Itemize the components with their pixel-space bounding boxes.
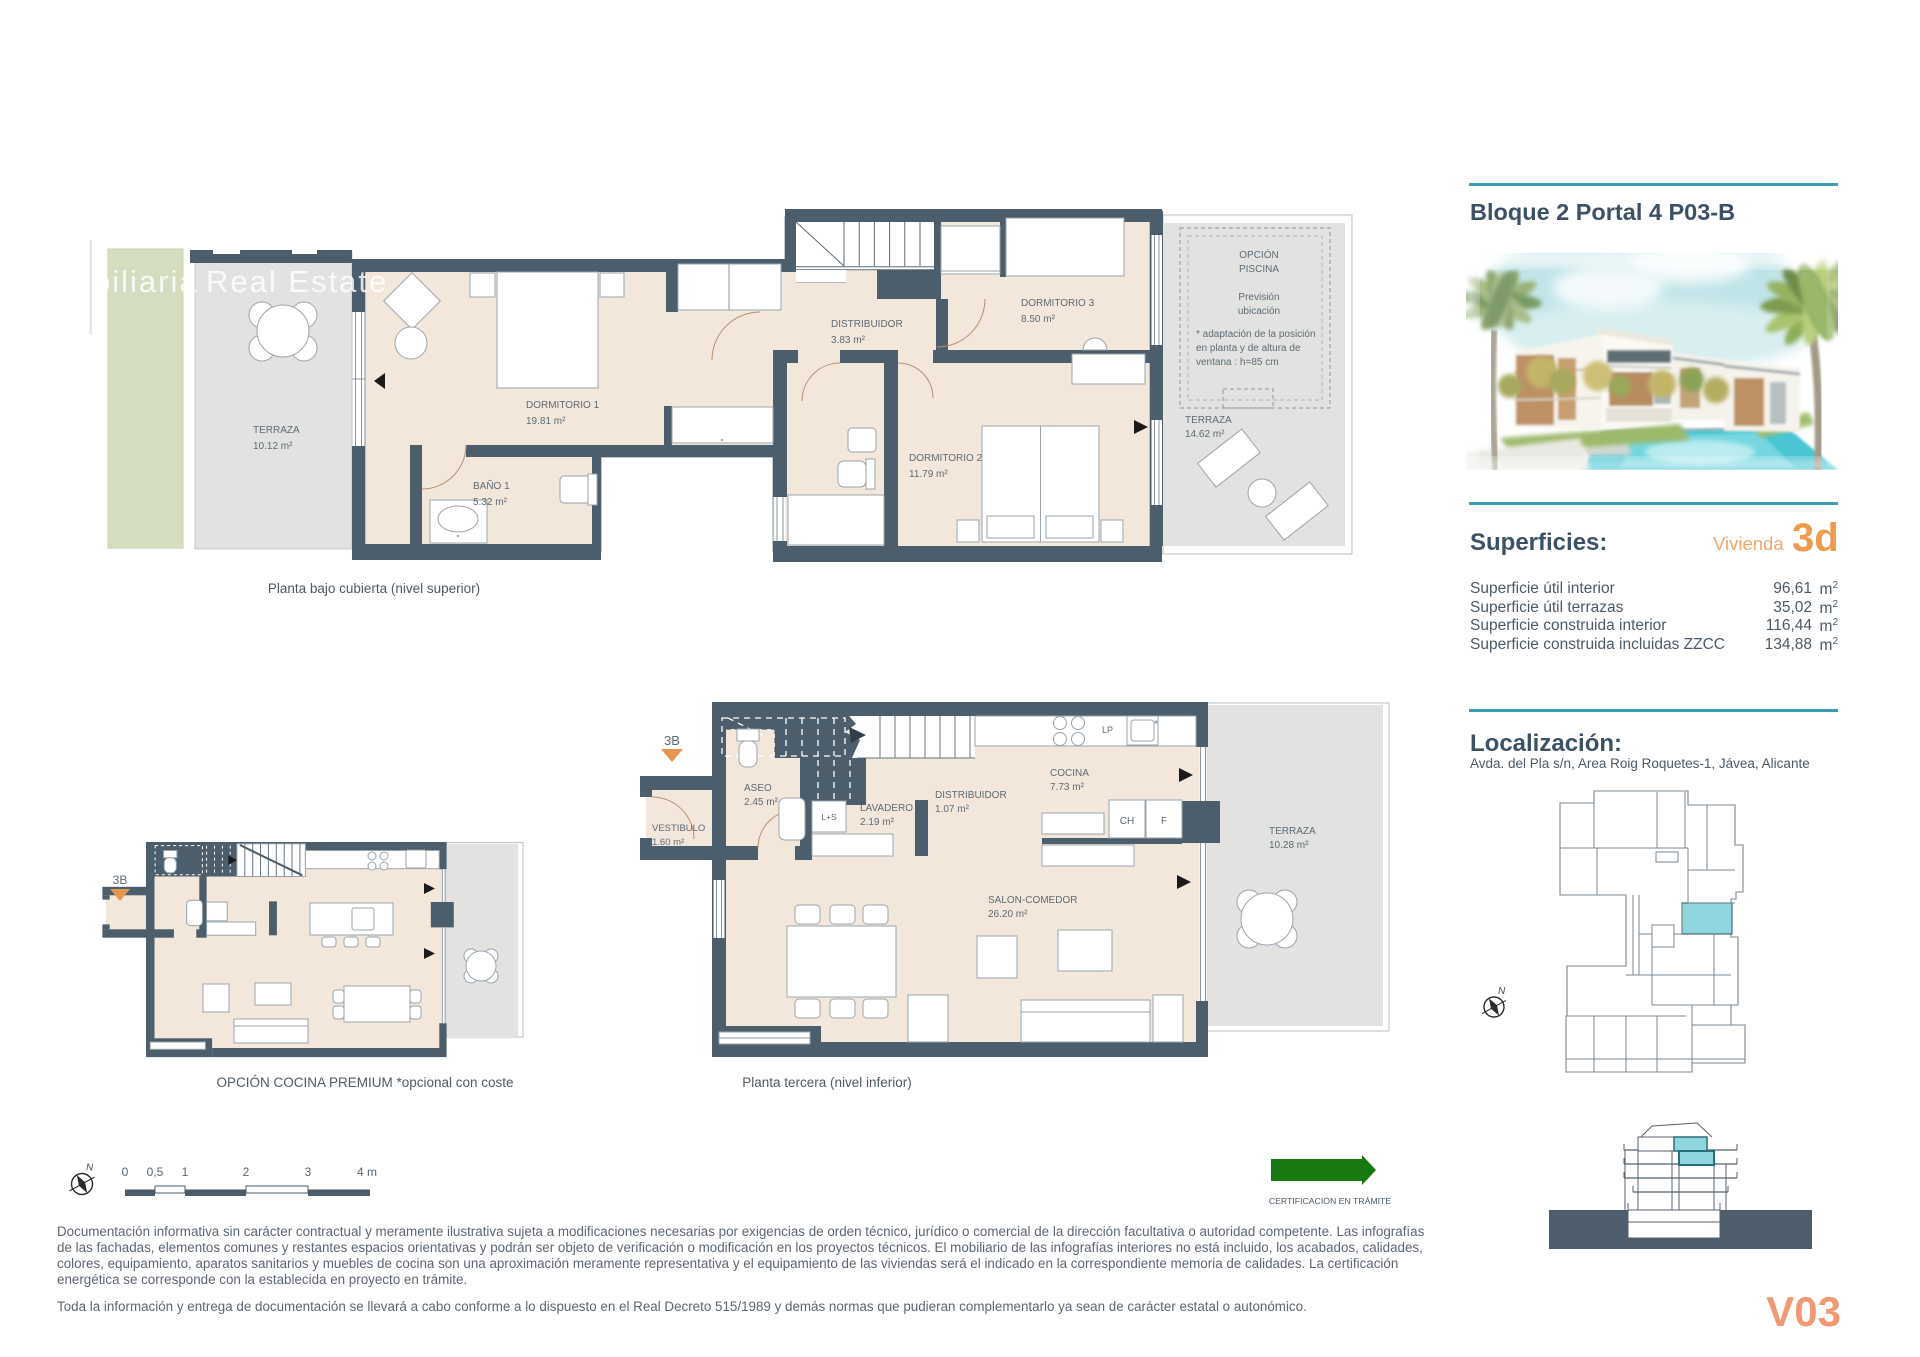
svg-text:8.50 m²: 8.50 m² bbox=[1021, 314, 1056, 325]
svg-text:SALON-COMEDOR: SALON-COMEDOR bbox=[988, 895, 1077, 906]
svg-text:N: N bbox=[1498, 986, 1506, 997]
svg-text:DORMITORIO 2: DORMITORIO 2 bbox=[909, 453, 983, 464]
svg-text:26.20 m²: 26.20 m² bbox=[988, 909, 1028, 920]
svg-text:DISTRIBUIDOR: DISTRIBUIDOR bbox=[831, 319, 903, 330]
svg-text:TERRAZA: TERRAZA bbox=[253, 425, 300, 436]
svg-text:ASEO: ASEO bbox=[744, 783, 772, 794]
svg-text:2: 2 bbox=[243, 1165, 250, 1179]
svg-text:ubicación: ubicación bbox=[1238, 306, 1280, 317]
svg-text:0,5: 0,5 bbox=[147, 1165, 164, 1179]
svg-text:DORMITORIO 1: DORMITORIO 1 bbox=[526, 400, 600, 411]
svg-text:N: N bbox=[86, 1163, 94, 1174]
svg-text:OPCIÓN: OPCIÓN bbox=[1239, 248, 1278, 261]
svg-text:DORMITORIO 3: DORMITORIO 3 bbox=[1021, 298, 1095, 309]
svg-text:* adaptación de la posición: * adaptación de la posición bbox=[1196, 329, 1316, 340]
svg-text:19.81 m²: 19.81 m² bbox=[526, 416, 566, 427]
svg-text:Previsión: Previsión bbox=[1238, 292, 1279, 303]
svg-text:10.12 m²: 10.12 m² bbox=[253, 441, 293, 452]
svg-text:2.19 m²: 2.19 m² bbox=[860, 817, 895, 828]
svg-text:LAVADERO: LAVADERO bbox=[860, 803, 913, 814]
svg-text:PISCINA: PISCINA bbox=[1239, 264, 1279, 275]
svg-text:F: F bbox=[1161, 816, 1167, 827]
svg-text:DISTRIBUIDOR: DISTRIBUIDOR bbox=[935, 790, 1007, 801]
svg-text:5.32 m²: 5.32 m² bbox=[473, 497, 508, 508]
svg-text:Real Estate: Real Estate bbox=[206, 264, 388, 299]
svg-text:1: 1 bbox=[182, 1165, 189, 1179]
svg-text:7.73 m²: 7.73 m² bbox=[1050, 782, 1085, 793]
svg-text:3B: 3B bbox=[664, 733, 680, 748]
svg-text:CERTIFICACIÓN EN TRÁMITE: CERTIFICACIÓN EN TRÁMITE bbox=[1269, 1196, 1391, 1206]
svg-text:TERRAZA: TERRAZA bbox=[1269, 826, 1316, 837]
svg-text:1.07 m²: 1.07 m² bbox=[935, 804, 970, 815]
svg-text:14.62 m²: 14.62 m² bbox=[1185, 429, 1225, 440]
svg-text:3: 3 bbox=[305, 1165, 312, 1179]
svg-text:biliaria: biliaria bbox=[93, 264, 199, 299]
svg-text:2.45 m²: 2.45 m² bbox=[744, 797, 779, 808]
svg-text:10.28 m²: 10.28 m² bbox=[1269, 840, 1309, 851]
svg-text:L+S: L+S bbox=[821, 812, 837, 822]
svg-text:0: 0 bbox=[122, 1165, 129, 1179]
svg-text:en planta y de altura de: en planta y de altura de bbox=[1196, 343, 1301, 354]
svg-text:CH: CH bbox=[1120, 816, 1134, 827]
svg-text:4 m: 4 m bbox=[357, 1165, 377, 1179]
svg-text:3.83 m²: 3.83 m² bbox=[831, 335, 866, 346]
svg-text:ventana : h=85 cm: ventana : h=85 cm bbox=[1196, 357, 1279, 368]
svg-text:LP: LP bbox=[1102, 725, 1113, 735]
svg-text:VESTIBULO: VESTIBULO bbox=[652, 823, 705, 834]
svg-text:COCINA: COCINA bbox=[1050, 768, 1089, 779]
svg-text:11.79 m²: 11.79 m² bbox=[909, 469, 948, 480]
svg-text:1.60 m²: 1.60 m² bbox=[652, 837, 684, 848]
svg-text:3B: 3B bbox=[113, 873, 128, 887]
svg-text:BAÑO 1: BAÑO 1 bbox=[473, 479, 510, 492]
svg-text:TERRAZA: TERRAZA bbox=[1185, 415, 1232, 426]
